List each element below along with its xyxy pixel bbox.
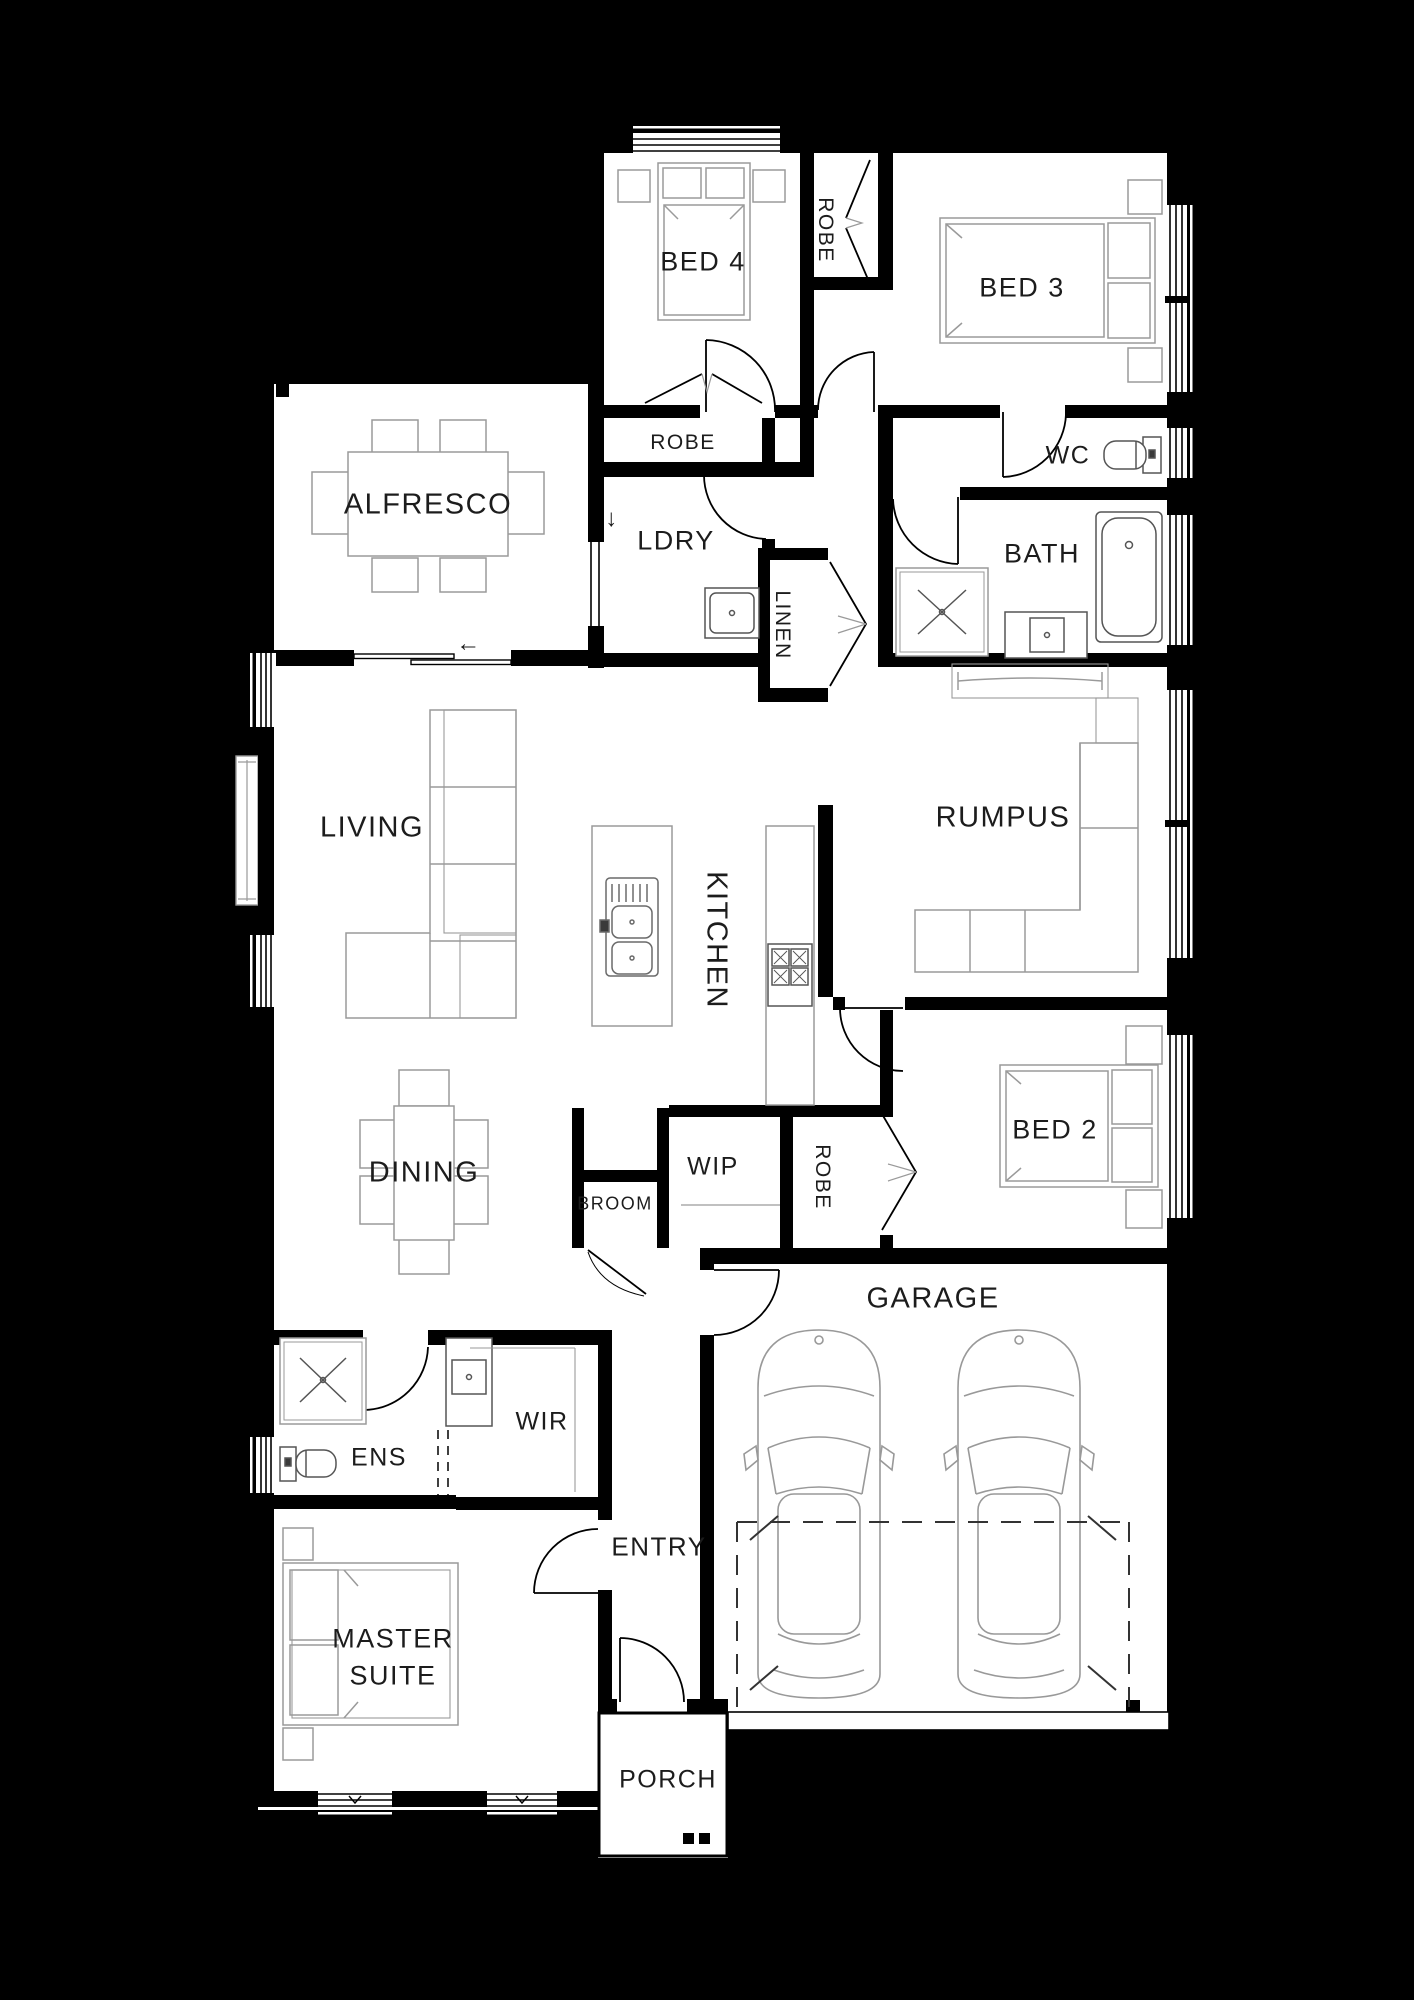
room-label-alfresco: ALFRESCO [344,489,512,522]
ens-vanity-icon [446,1338,492,1426]
room-label-wip: WIP [687,1153,739,1182]
ens-shower-icon [280,1338,366,1424]
room-label-linen: LINEN [770,590,794,659]
kitchen-island-icon [592,826,672,1026]
room-label-ens: ENS [351,1444,407,1473]
room-label-master-line2: SUITE [349,1661,436,1692]
room-label-master-line1: MASTER [332,1624,454,1655]
room-label-bed2: BED 2 [1012,1115,1098,1146]
room-label-kitchen: KITCHEN [700,871,733,1009]
room-label-broom: BROOM [577,1194,653,1215]
slider-arrow-icon: ← [456,630,482,658]
laundry-trough-icon [705,588,759,638]
room-label-living: LIVING [320,812,424,845]
room-label-garage: GARAGE [866,1283,999,1316]
bath-vanity-icon [1005,612,1087,658]
room-label-wc: WC [1046,442,1091,471]
room-label-bed3: BED 3 [979,273,1065,304]
room-label-entry: ENTRY [611,1532,706,1563]
room-label-rumpus: RUMPUS [936,802,1071,835]
alfresco-post [276,384,289,397]
bath-shower-icon [896,568,988,656]
room-label-ldry: LDRY [637,526,715,557]
ldry-exit-door [586,542,606,626]
room-label-dining: DINING [369,1157,480,1190]
room-label-bath: BATH [1004,539,1080,570]
garage-door-slab [728,1712,1169,1730]
room-label-robe-bed4: ROBE [650,431,716,455]
ens-toilet-icon [280,1447,336,1481]
room-label-wir: WIR [515,1408,568,1437]
wc-toilet-icon [1104,437,1161,473]
room-label-bed4: BED 4 [660,247,746,278]
kitchen-bench-icon [766,826,814,1105]
bathtub-icon [1096,512,1162,642]
floor-plan: BED 4 ROBE BED 3 ALFRESCO ROBE WC LDRY B… [0,0,1414,2000]
ldry-exit-arrow-icon: ↓ [605,505,619,533]
room-label-robe-bed3: ROBE [813,197,837,263]
room-label-porch: PORCH [619,1766,717,1795]
porch-post-2 [699,1833,710,1844]
cooktop-icon [768,944,812,1006]
room-label-robe-bed2: ROBE [810,1144,834,1210]
right-wall-windows [1165,205,1193,1218]
porch-post [683,1833,694,1844]
